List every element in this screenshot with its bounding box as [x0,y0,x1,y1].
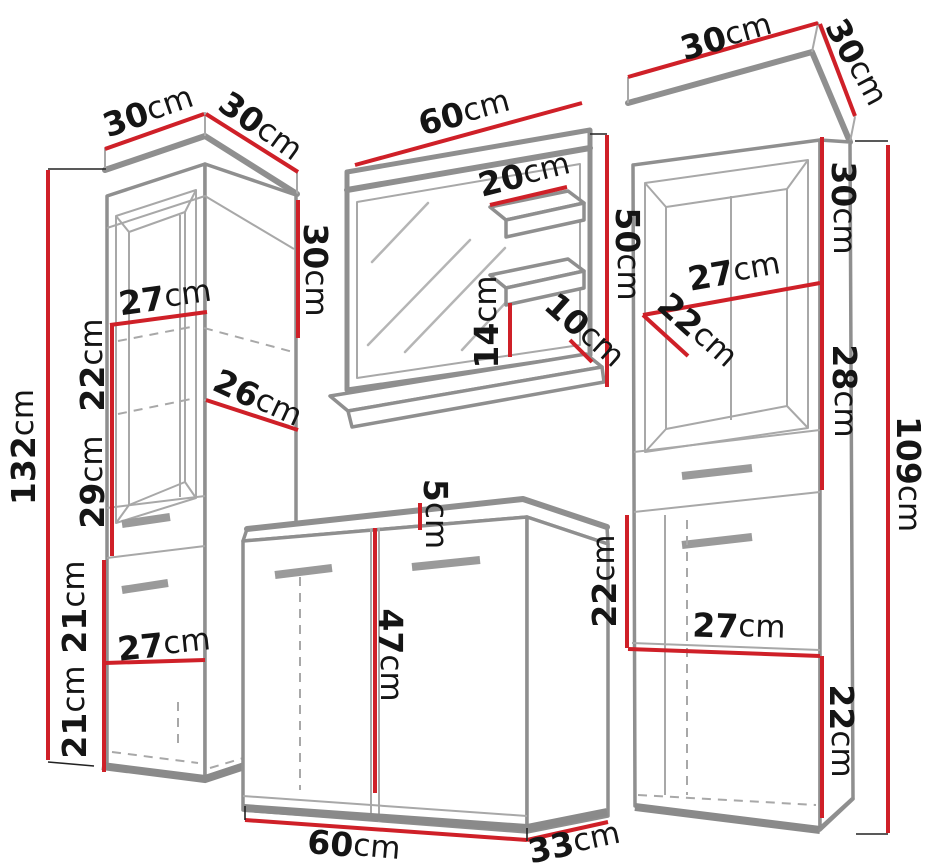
svg-text:50cm: 50cm [609,207,648,300]
dim-label-right-tall-cabinet-inner-width-lower: 27cm [692,605,786,647]
svg-text:22cm: 22cm [823,684,862,777]
svg-text:22cm: 22cm [73,318,112,411]
dim-label-mirror-with-shelves-shelf-gap: 14cm [467,275,506,368]
dim-label-left-tall-cabinet-bottom-section-height: 21cm [55,665,94,758]
diagram-canvas: 30cm30cm30cm27cm22cm26cm132cm29cm21cm27c… [0,0,939,867]
svg-text:22cm: 22cm [585,534,624,627]
svg-text:27cm: 27cm [692,605,786,647]
svg-text:30cm: 30cm [297,223,336,316]
svg-text:14cm: 14cm [467,275,506,368]
svg-text:29cm: 29cm [73,435,112,528]
dim-label-right-tall-cabinet-upper-side-height: 30cm [825,161,864,254]
svg-text:5cm: 5cm [417,479,456,549]
furniture-dimension-diagram: 30cm30cm30cm27cm22cm26cm132cm29cm21cm27c… [0,0,939,867]
dim-label-left-tall-cabinet-drawer-section-height: 21cm [55,560,94,653]
dim-label-left-tall-cabinet-shelf-gap-lower: 29cm [73,435,112,528]
dim-label-left-tall-cabinet-upper-side-height: 30cm [297,223,336,316]
dim-label-mirror-with-shelves-mirror-height: 50cm [609,207,648,300]
dim-label-right-tall-cabinet-total-height: 109cm [890,416,929,532]
dim-label-right-tall-cabinet-door-section-height: 22cm [585,534,624,627]
svg-text:109cm: 109cm [890,416,929,532]
svg-text:47cm: 47cm [372,608,411,701]
dim-label-left-tall-cabinet-shelf-gap-upper: 22cm [73,318,112,411]
svg-text:30cm: 30cm [676,4,776,67]
cabinet-front-face [633,140,820,828]
dim-label-sink-cabinet-door-height: 47cm [372,608,411,701]
svg-text:132cm: 132cm [4,389,43,505]
dim-label-right-tall-cabinet-top-width: 30cm [676,4,776,67]
svg-text:21cm: 21cm [55,560,94,653]
dim-label-left-tall-cabinet-total-height: 132cm [4,389,43,505]
dim-label-sink-cabinet-counter-thickness: 5cm [417,479,456,549]
svg-text:28cm: 28cm [826,344,865,437]
cabinet-front-face [107,164,205,778]
dim-label-right-tall-cabinet-middle-side-height: 28cm [826,344,865,437]
svg-text:21cm: 21cm [55,665,94,758]
svg-text:30cm: 30cm [825,161,864,254]
dim-label-right-tall-cabinet-bottom-section-height: 22cm [823,684,862,777]
